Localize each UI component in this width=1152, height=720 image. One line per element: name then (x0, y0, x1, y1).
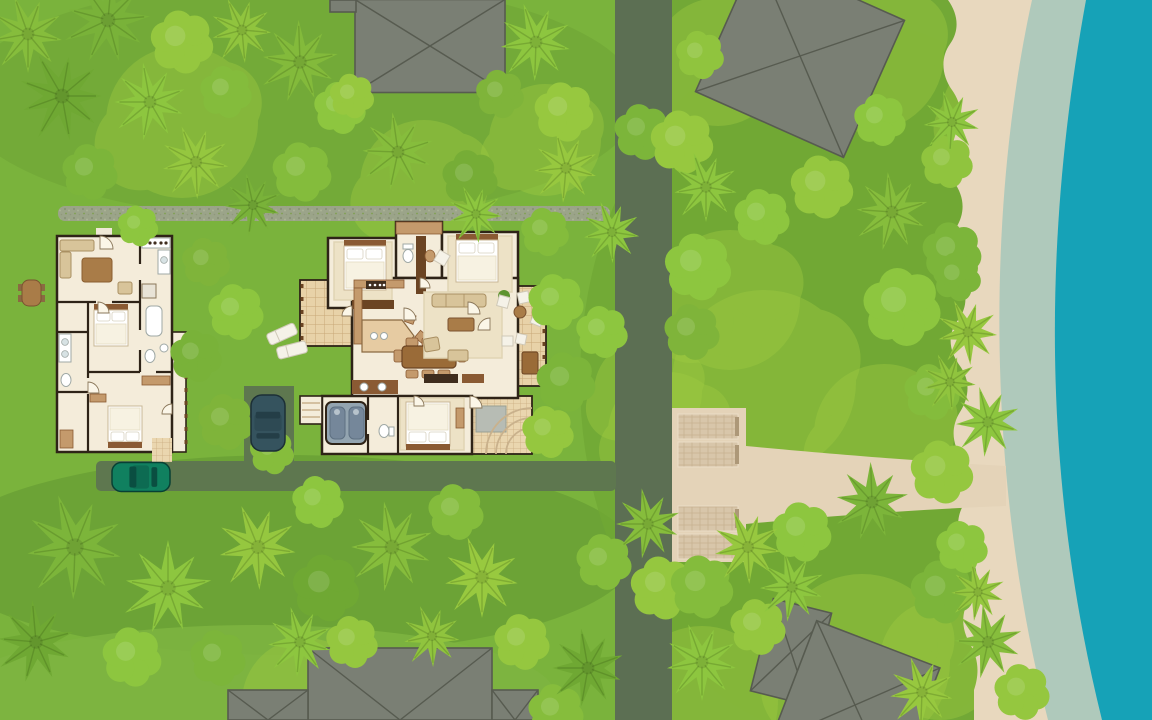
dresser (90, 394, 106, 402)
tv-console (424, 374, 458, 383)
tile-walkway (152, 438, 172, 462)
toilet (379, 425, 389, 438)
sofa (432, 294, 486, 307)
wardrobe (60, 430, 73, 448)
armchair (423, 337, 440, 352)
bed-headboard (108, 442, 142, 448)
island-sink (371, 333, 378, 340)
jacuzzi-tub (326, 402, 366, 444)
car-top-view (251, 395, 285, 451)
vanity-counter (352, 380, 398, 394)
bathtub (146, 306, 162, 336)
sink (360, 383, 368, 391)
building-roof (330, 0, 356, 12)
toilet (145, 350, 155, 363)
building-roof (355, 0, 505, 93)
building-roof (228, 690, 308, 720)
parking-stall (678, 414, 739, 439)
bed-headboard (344, 240, 386, 246)
sink (160, 344, 168, 352)
sink (378, 383, 386, 391)
toilet-tank (403, 244, 413, 249)
toilet-tank (389, 427, 394, 436)
fridge (142, 284, 156, 298)
site-plan-map (0, 0, 1152, 720)
sideboard (462, 374, 484, 383)
island-sink (381, 333, 388, 340)
toilet (403, 250, 413, 263)
loveseat (448, 350, 468, 361)
sofa (60, 240, 94, 251)
armchair (118, 282, 132, 294)
sink (161, 257, 168, 264)
closet (142, 376, 170, 385)
sofa-chaise (60, 252, 71, 278)
car-top-view (112, 463, 170, 492)
bed-headboard (406, 444, 450, 450)
bench (456, 408, 464, 428)
driveway (96, 461, 616, 491)
bath-counter (396, 222, 442, 234)
kitchen-counter (354, 288, 362, 344)
parking-stall (678, 442, 739, 467)
site-plan-svg (0, 0, 1152, 720)
area-rug (82, 258, 112, 282)
toilet (61, 374, 71, 387)
coffee-table (448, 318, 474, 331)
parking-stall (678, 506, 739, 531)
